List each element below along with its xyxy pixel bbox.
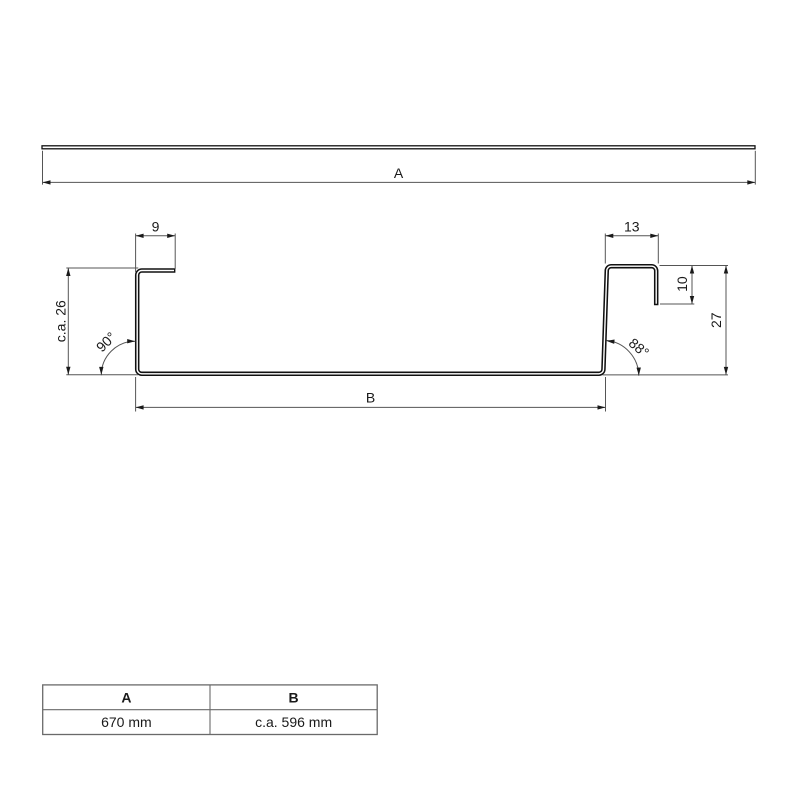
svg-text:27: 27 — [708, 312, 724, 328]
svg-text:B: B — [366, 390, 375, 406]
svg-text:10: 10 — [674, 276, 690, 292]
svg-text:13: 13 — [624, 218, 640, 234]
svg-text:c.a. 26: c.a. 26 — [52, 300, 68, 342]
svg-text:B: B — [289, 689, 299, 705]
svg-text:9: 9 — [152, 218, 160, 234]
svg-text:A: A — [121, 689, 131, 705]
svg-text:A: A — [394, 165, 404, 181]
svg-text:670 mm: 670 mm — [101, 714, 152, 730]
svg-text:c.a. 596 mm: c.a. 596 mm — [255, 714, 332, 730]
